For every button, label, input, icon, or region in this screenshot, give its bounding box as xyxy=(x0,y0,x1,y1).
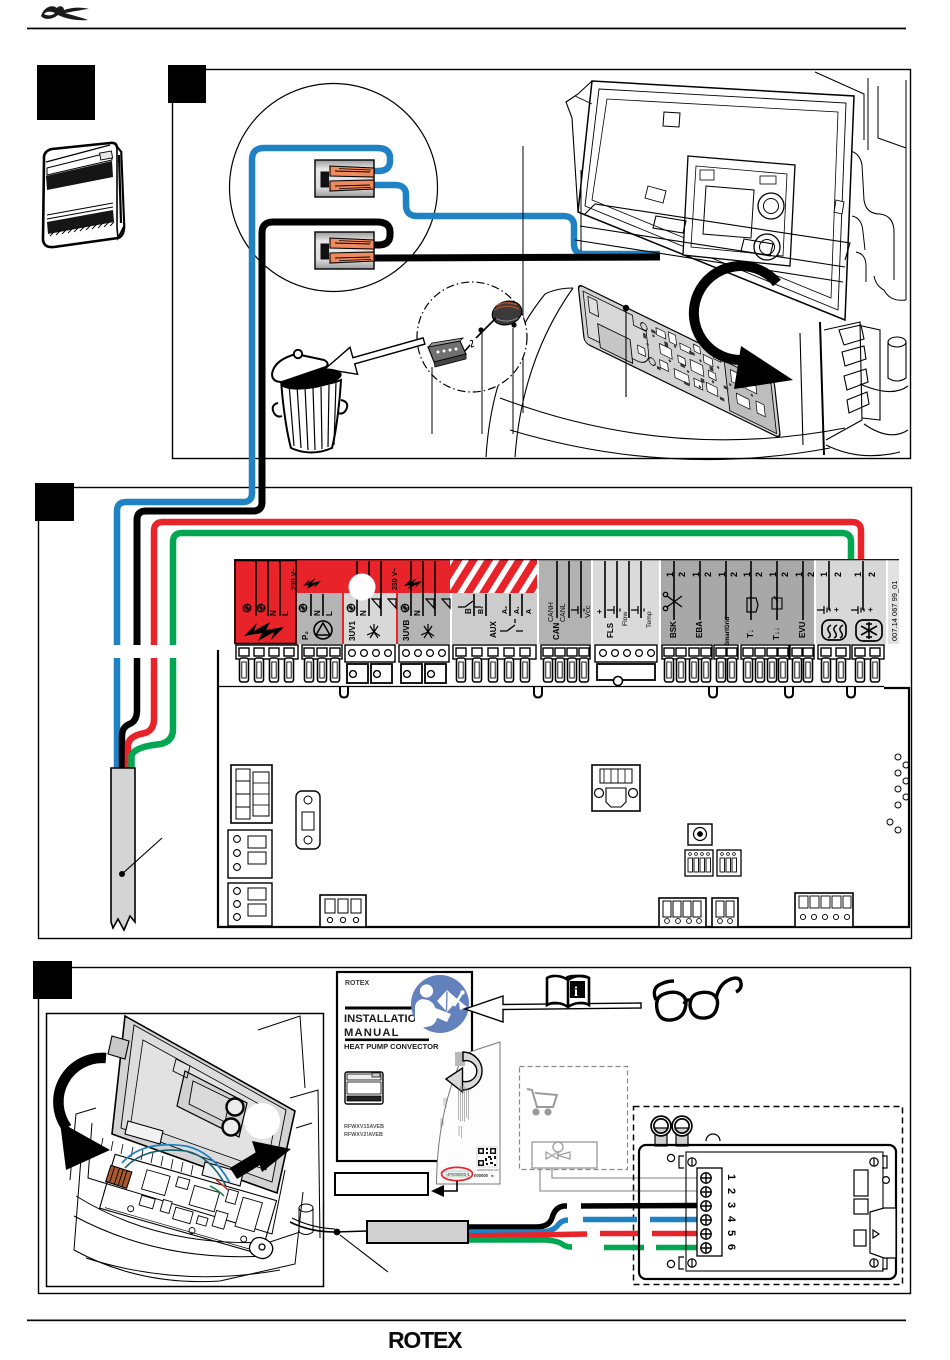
svg-text:1: 1 xyxy=(794,572,804,577)
svg-text:■○: ■○ xyxy=(491,1174,495,1178)
svg-text:4P000000-1: 4P000000-1 xyxy=(447,1172,470,1177)
svg-text:230 V~: 230 V~ xyxy=(392,568,399,590)
svg-text:L: L xyxy=(281,611,290,616)
svg-text:1: 1 xyxy=(665,572,675,577)
svg-text:1: 1 xyxy=(725,1174,737,1180)
svg-text:MANUAL: MANUAL xyxy=(344,1027,400,1039)
svg-text:ROTEX: ROTEX xyxy=(388,1327,463,1353)
svg-text:5: 5 xyxy=(725,1230,737,1236)
svg-text:B: B xyxy=(464,608,473,614)
svg-text:3UV1: 3UV1 xyxy=(348,620,357,641)
svg-text:N: N xyxy=(413,610,422,616)
svg-text:2: 2 xyxy=(677,572,687,577)
svg-text:2: 2 xyxy=(729,572,739,577)
svg-text:Flow: Flow xyxy=(622,612,629,626)
svg-text:N: N xyxy=(269,610,278,616)
svg-text:N: N xyxy=(313,610,322,616)
svg-text:+: + xyxy=(866,607,875,612)
svg-text:CAN: CAN xyxy=(552,622,561,640)
svg-text:EVU: EVU xyxy=(798,621,807,638)
svg-text:2: 2 xyxy=(867,572,877,577)
svg-text:2: 2 xyxy=(725,1188,737,1194)
svg-text:ROTEX: ROTEX xyxy=(345,980,369,987)
svg-text:A₁: A₁ xyxy=(514,606,521,614)
svg-text:2: 2 xyxy=(780,572,790,577)
svg-text:INSTALLATION: INSTALLATION xyxy=(344,1013,424,1025)
svg-text:L: L xyxy=(325,611,334,616)
svg-text:SmartGrid: SmartGrid xyxy=(725,616,731,646)
svg-text:6: 6 xyxy=(725,1244,737,1250)
svg-text:2: 2 xyxy=(806,572,816,577)
svg-text:EBA: EBA xyxy=(695,621,704,638)
svg-text:T↓↓: T↓↓ xyxy=(772,627,781,640)
svg-text:BSK: BSK xyxy=(669,621,678,638)
svg-text:007.14 067 99_01: 007.14 067 99_01 xyxy=(890,581,899,641)
svg-text:3: 3 xyxy=(725,1202,737,1208)
svg-text:+: + xyxy=(595,609,604,614)
svg-text:1: 1 xyxy=(742,572,752,577)
svg-text:2: 2 xyxy=(754,572,764,577)
svg-text:P₂: P₂ xyxy=(301,631,310,640)
svg-text:+: + xyxy=(832,607,841,612)
svg-text:HEAT PUMP CONVECTOR: HEAT PUMP CONVECTOR xyxy=(344,1042,439,1051)
svg-text:CANH: CANH xyxy=(548,602,555,622)
svg-text:000000: 000000 xyxy=(474,1173,489,1178)
svg-text:AUX: AUX xyxy=(489,620,498,638)
svg-text:A: A xyxy=(526,609,533,614)
svg-text:RFWXV2!AVEB: RFWXV2!AVEB xyxy=(344,1132,383,1138)
svg-text:i: i xyxy=(574,985,578,1000)
svg-text:2: 2 xyxy=(703,572,713,577)
svg-text:1: 1 xyxy=(853,572,863,577)
svg-text:1: 1 xyxy=(819,572,829,577)
svg-text:1: 1 xyxy=(717,572,727,577)
svg-text:Vcc: Vcc xyxy=(583,605,592,618)
svg-text:N: N xyxy=(359,610,368,616)
svg-text:2: 2 xyxy=(833,572,843,577)
svg-text:RFWXV15AVEB: RFWXV15AVEB xyxy=(344,1124,384,1130)
svg-text:1: 1 xyxy=(768,572,778,577)
svg-text:00000000000-XXX: 00000000000-XXX xyxy=(477,1168,499,1172)
svg-text:Temp: Temp xyxy=(646,611,653,628)
svg-text:T↓: T↓ xyxy=(746,629,755,638)
svg-text:A₂: A₂ xyxy=(502,606,509,614)
svg-text:3UVB: 3UVB xyxy=(402,619,411,641)
svg-text:4: 4 xyxy=(725,1216,737,1223)
svg-text:FLS: FLS xyxy=(606,622,615,638)
svg-text:CANL: CANL xyxy=(560,603,567,622)
svg-text:230 V~: 230 V~ xyxy=(291,568,298,590)
svg-text:1: 1 xyxy=(691,572,701,577)
